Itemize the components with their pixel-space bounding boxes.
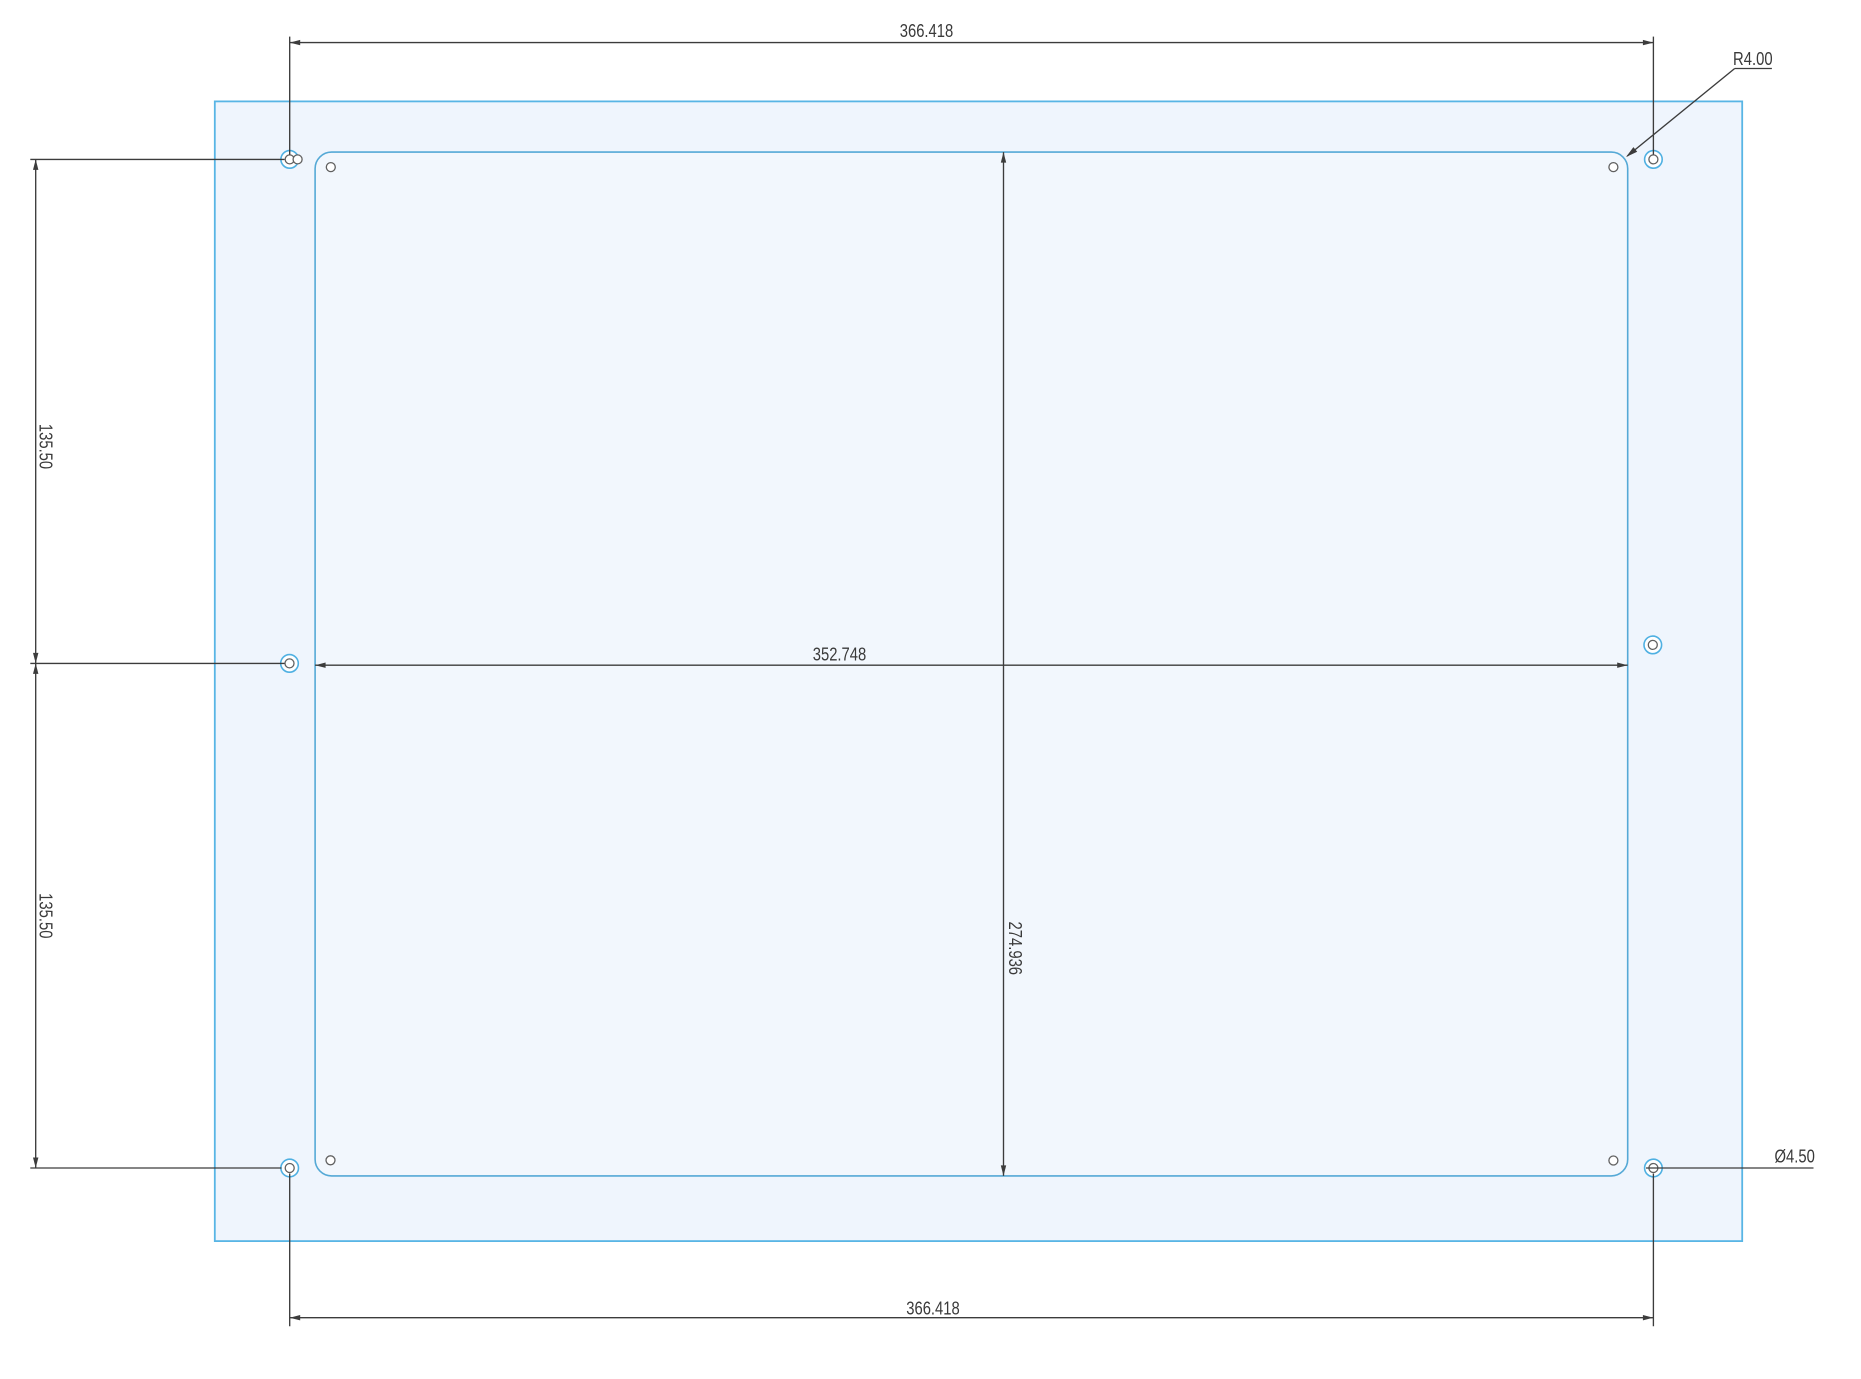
svg-text:274.936: 274.936 bbox=[1004, 922, 1025, 976]
svg-text:135.50: 135.50 bbox=[35, 893, 56, 938]
svg-text:366.418: 366.418 bbox=[906, 1298, 960, 1319]
svg-text:Ø4.50: Ø4.50 bbox=[1775, 1146, 1815, 1167]
svg-text:352.748: 352.748 bbox=[813, 644, 867, 665]
svg-text:135.50: 135.50 bbox=[35, 424, 56, 469]
svg-text:366.418: 366.418 bbox=[900, 21, 954, 42]
svg-text:R4.00: R4.00 bbox=[1733, 48, 1772, 69]
